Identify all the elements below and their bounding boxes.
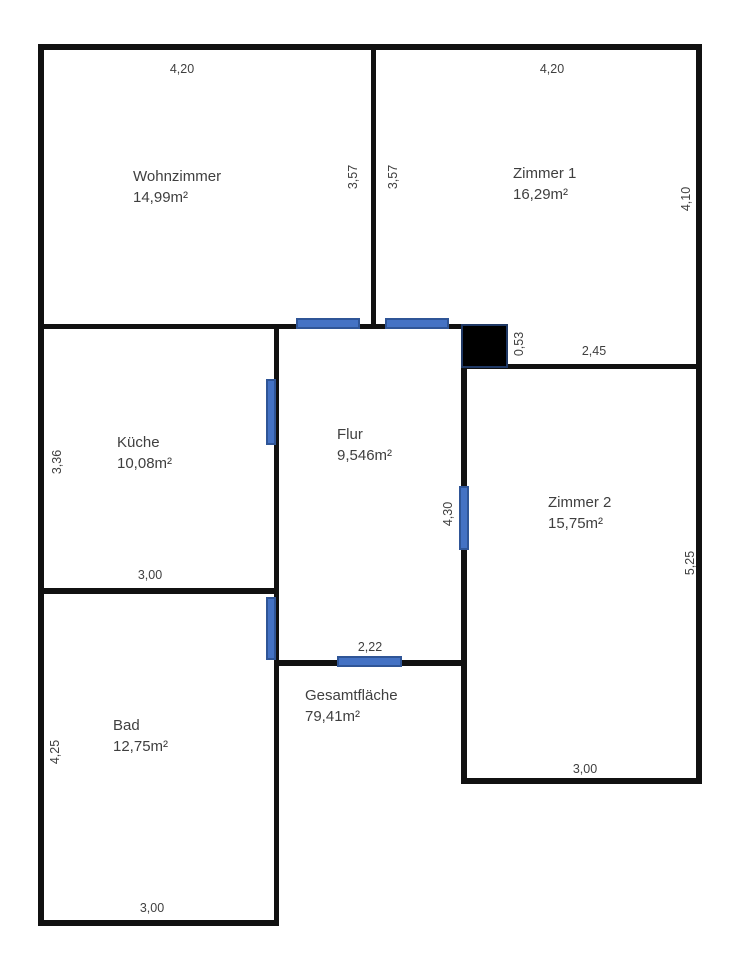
dim-zimmer2-top-width: 2,45 <box>572 343 616 359</box>
room-label-zimmer1: Zimmer 1 16,29m² <box>513 163 576 205</box>
room-name: Wohnzimmer <box>133 166 221 187</box>
closet-block <box>461 324 508 368</box>
wall-zimmer2-bottom <box>461 778 702 784</box>
dim-wohnzimmer-width: 4,20 <box>160 61 204 77</box>
room-area: 79,41m² <box>305 706 398 727</box>
room-area: 9,546m² <box>337 445 392 466</box>
room-label-flur: Flur 9,546m² <box>337 424 392 466</box>
room-area: 15,75m² <box>548 513 611 534</box>
dim-wohnzimmer-height: 3,57 <box>345 155 361 199</box>
wall-zimmer2-left <box>461 364 467 784</box>
wall-kueche-bad-divider <box>38 588 279 594</box>
dim-kueche-height: 3,36 <box>49 440 65 484</box>
door-wohnzimmer-flur <box>296 318 360 329</box>
room-label-kueche: Küche 10,08m² <box>117 432 172 474</box>
wall-outer-top <box>38 44 702 50</box>
door-flur-entrance <box>337 656 402 667</box>
door-zimmer1-flur <box>385 318 449 329</box>
dim-zimmer1-height-inner: 3,57 <box>385 155 401 199</box>
room-name: Flur <box>337 424 392 445</box>
dim-flur-height: 4,30 <box>440 492 456 536</box>
dim-bad-height: 4,25 <box>47 730 63 774</box>
dim-zimmer1-width: 4,20 <box>530 61 574 77</box>
dim-zimmer2-height: 5,25 <box>682 541 698 585</box>
room-label-zimmer2: Zimmer 2 15,75m² <box>548 492 611 534</box>
room-name: Gesamtfläche <box>305 685 398 706</box>
wall-bad-bottom <box>38 920 279 926</box>
dim-bad-width: 3,00 <box>130 900 174 916</box>
room-area: 12,75m² <box>113 736 168 757</box>
door-kueche-flur <box>266 379 276 445</box>
wall-wohnzimmer-zimmer1-divider <box>371 44 376 329</box>
room-label-wohnzimmer: Wohnzimmer 14,99m² <box>133 166 221 208</box>
wall-outer-right <box>696 44 702 784</box>
floorplan: Wohnzimmer 14,99m² Zimmer 1 16,29m² Küch… <box>0 0 730 960</box>
room-name: Zimmer 1 <box>513 163 576 184</box>
dim-kueche-width: 3,00 <box>128 567 172 583</box>
room-area: 16,29m² <box>513 184 576 205</box>
room-label-bad: Bad 12,75m² <box>113 715 168 757</box>
dim-closet-width: 0,53 <box>511 322 527 366</box>
room-area: 14,99m² <box>133 187 221 208</box>
door-flur-zimmer2 <box>459 486 469 550</box>
wall-outer-left <box>38 44 44 926</box>
dim-zimmer2-width: 3,00 <box>563 761 607 777</box>
room-name: Zimmer 2 <box>548 492 611 513</box>
dim-flur-width: 2,22 <box>348 639 392 655</box>
room-name: Bad <box>113 715 168 736</box>
dim-zimmer1-height-outer: 4,10 <box>678 177 694 221</box>
room-label-total-area: Gesamtfläche 79,41m² <box>305 685 398 727</box>
room-name: Küche <box>117 432 172 453</box>
room-area: 10,08m² <box>117 453 172 474</box>
door-bad-flur <box>266 597 276 660</box>
